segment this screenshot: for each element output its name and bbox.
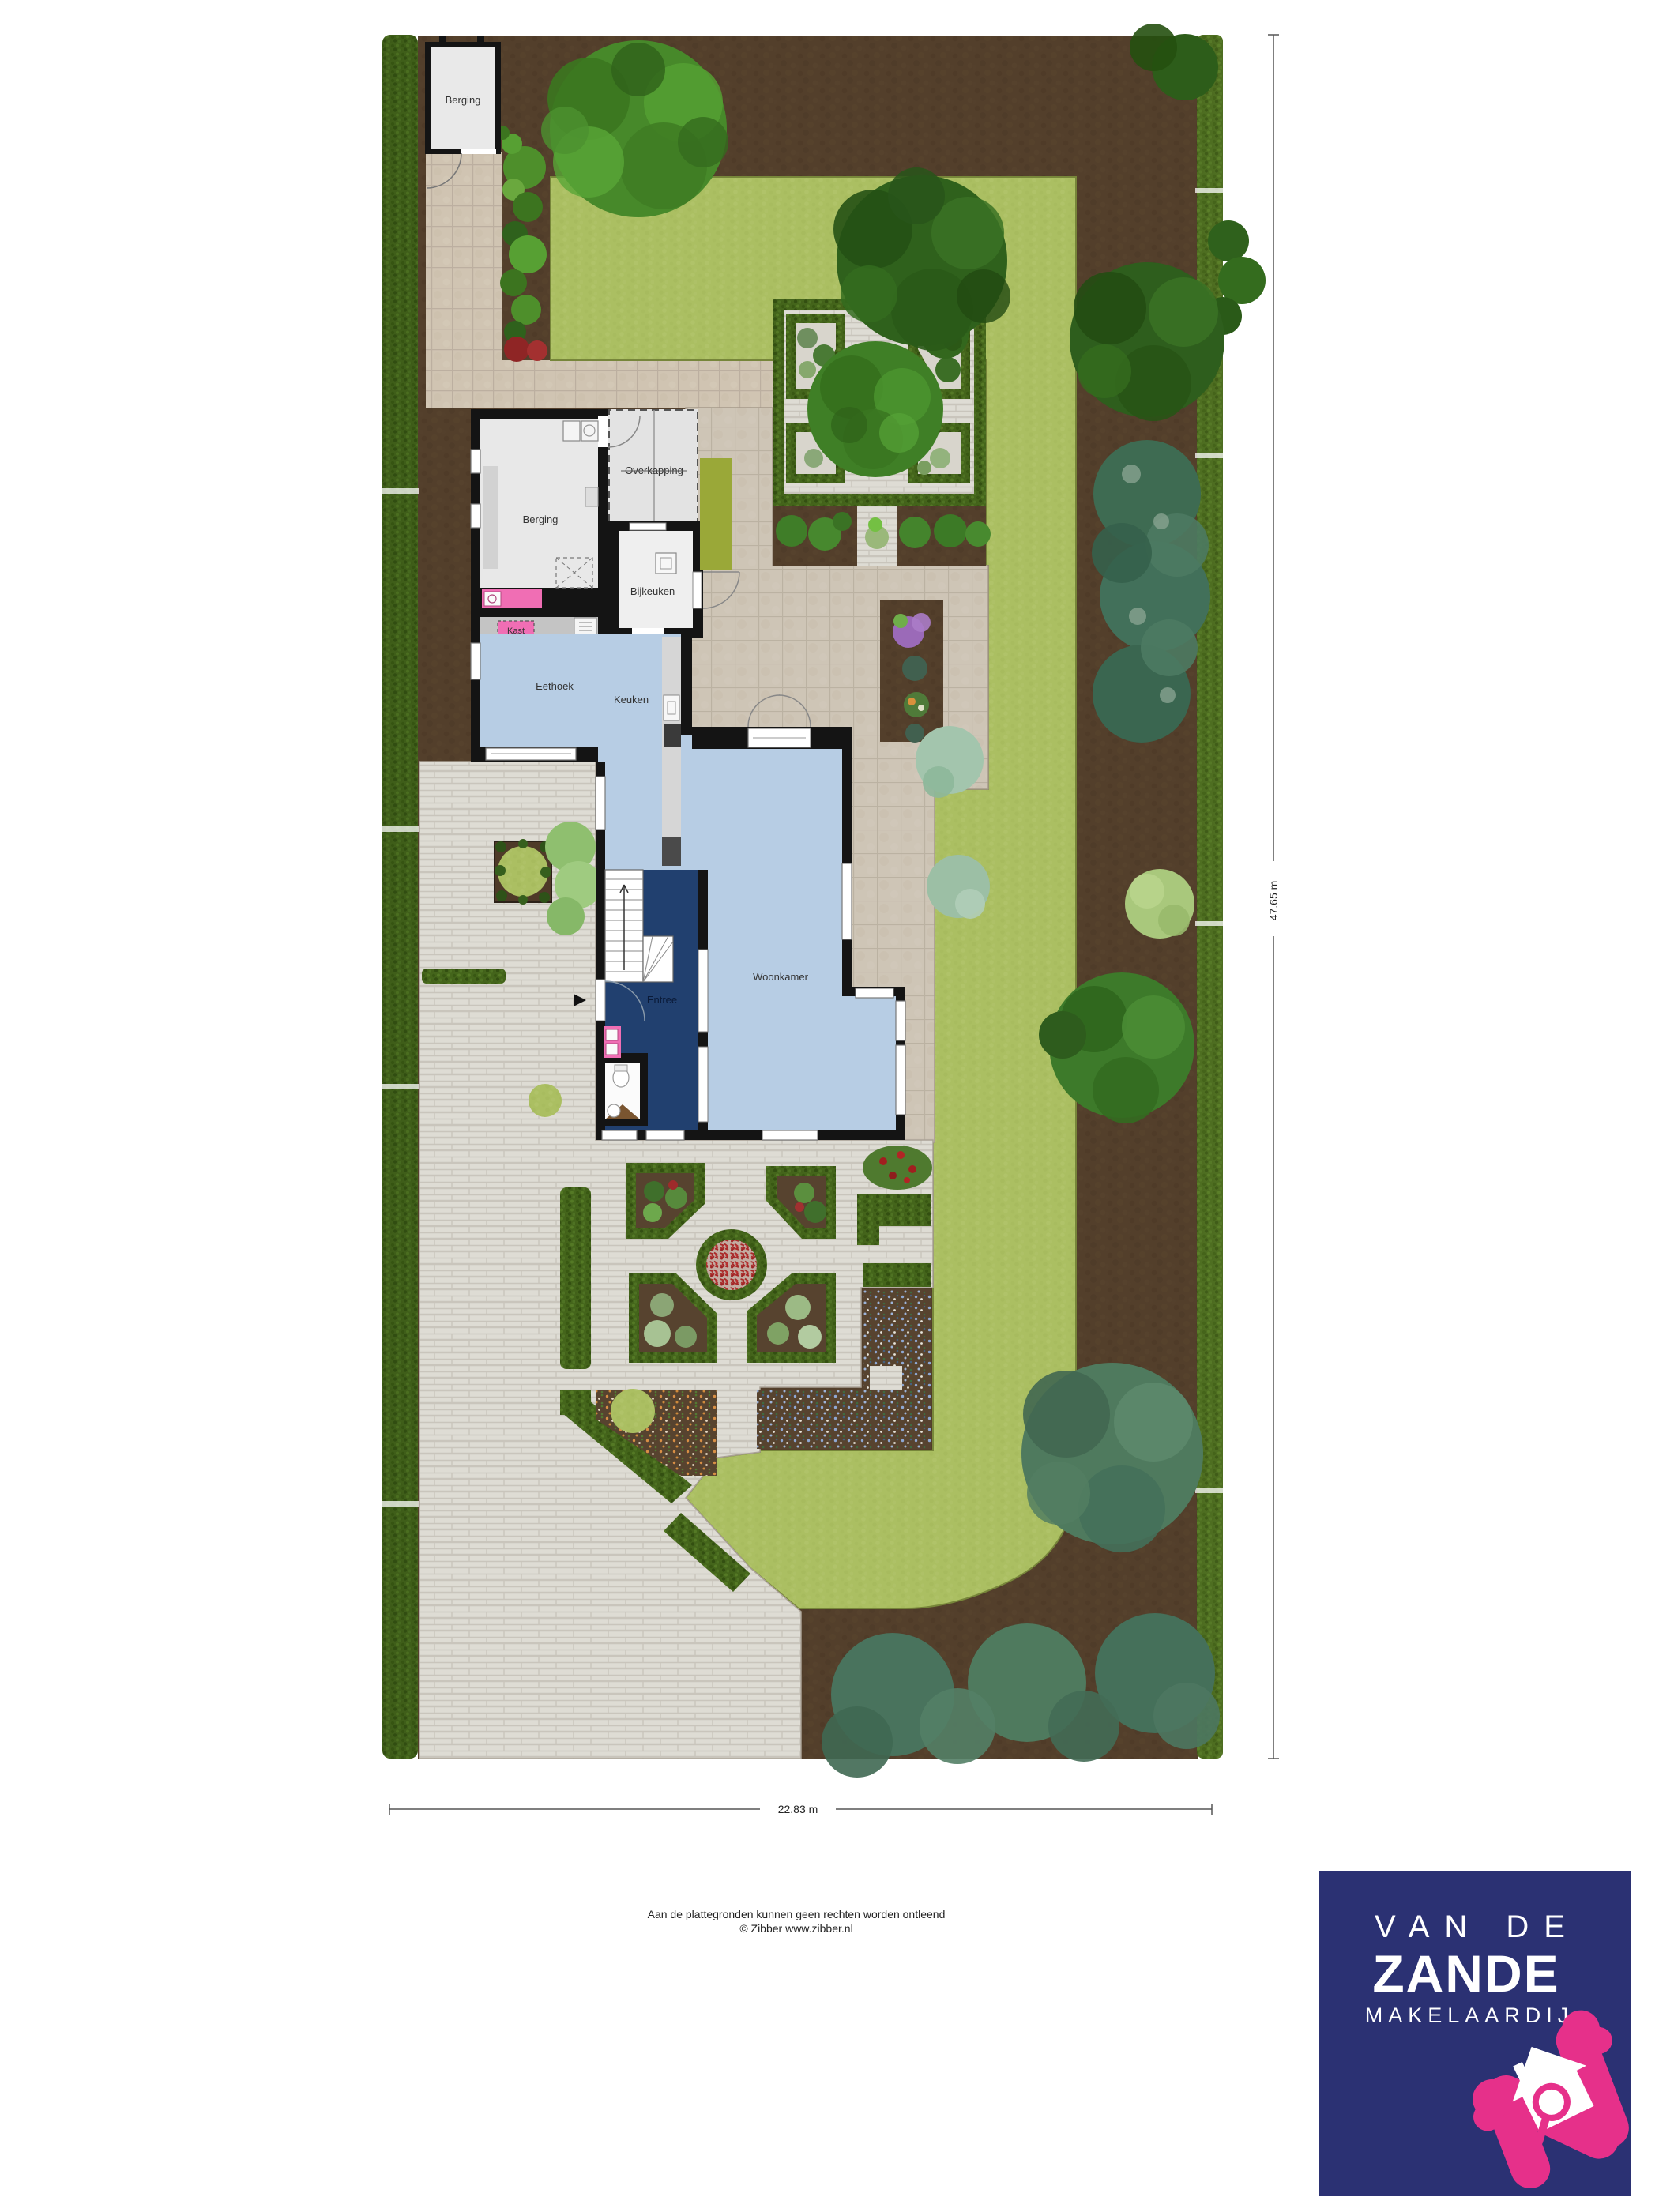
svg-text:MAKELAARDIJ: MAKELAARDIJ [1365,2003,1574,2027]
svg-text:ZANDE: ZANDE [1372,1944,1559,2003]
svg-text:Berging: Berging [446,94,481,106]
svg-text:Woonkamer: Woonkamer [753,971,809,983]
svg-text:Eethoek: Eethoek [536,680,574,692]
svg-text:22.83 m: 22.83 m [778,1803,818,1815]
svg-text:© Zibber www.zibber.nl: © Zibber www.zibber.nl [739,1922,852,1935]
svg-text:Bijkeuken: Bijkeuken [630,585,675,597]
svg-text:Keuken: Keuken [614,694,649,705]
svg-text:VAN DE: VAN DE [1375,1909,1580,1944]
svg-text:Entree: Entree [647,994,677,1006]
svg-text:Berging: Berging [523,513,559,525]
svg-text:47.65 m: 47.65 m [1267,881,1280,921]
svg-text:Aan de plattegronden kunnen ge: Aan de plattegronden kunnen geen rechten… [648,1908,946,1920]
